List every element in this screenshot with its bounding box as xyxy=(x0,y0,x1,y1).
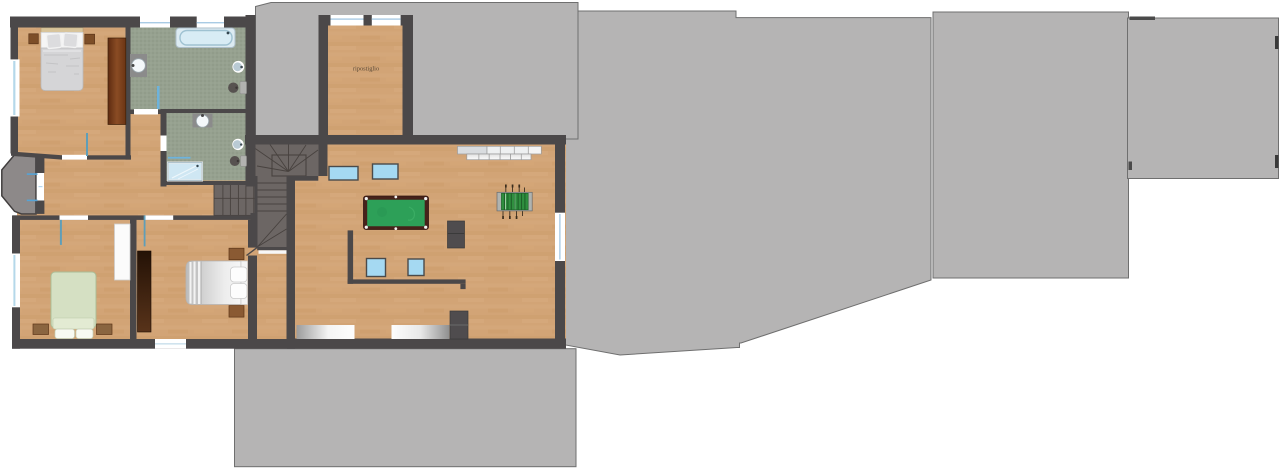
svg-text:ripostiglio: ripostiglio xyxy=(353,66,379,73)
